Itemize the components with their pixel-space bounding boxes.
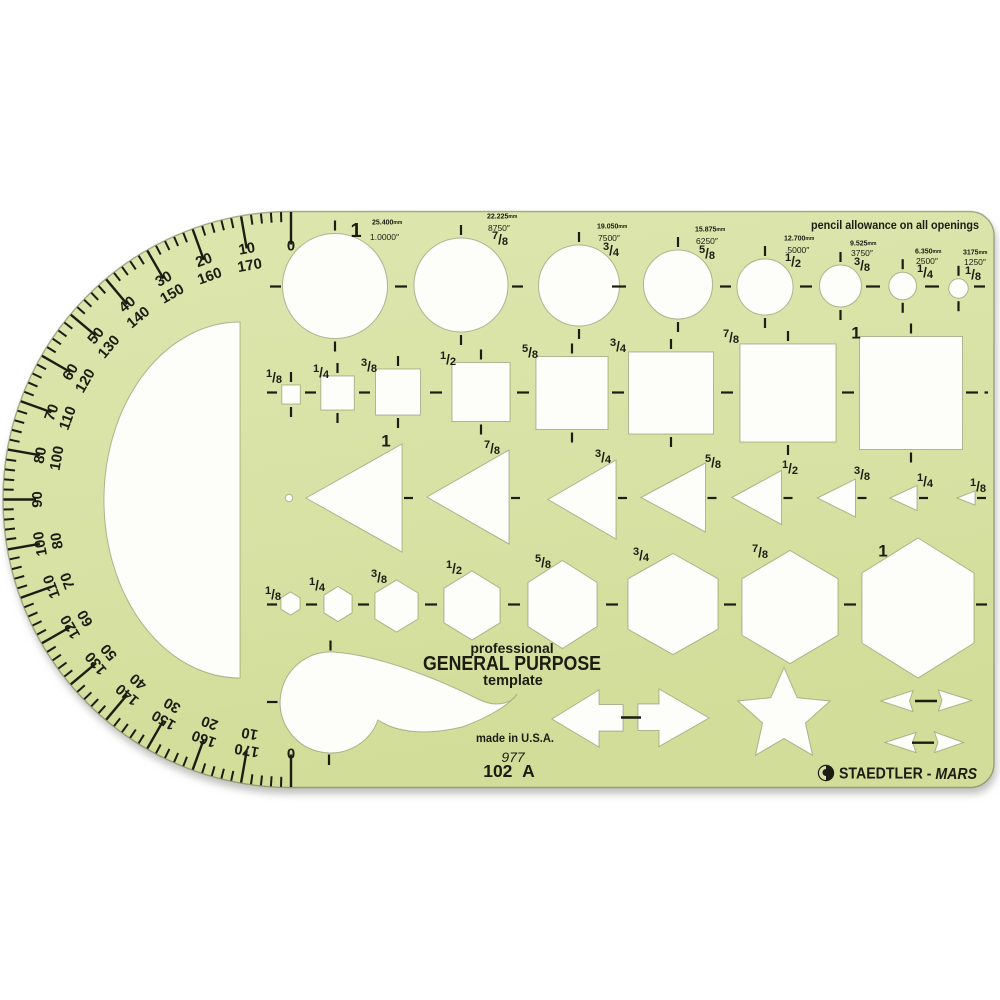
svg-text:3175mm: 3175mm [963, 250, 988, 257]
svg-text:1: 1 [350, 220, 361, 242]
svg-text:9.525mm: 9.525mm [850, 241, 877, 248]
svg-text:12.700mm: 12.700mm [784, 236, 815, 243]
svg-text:0: 0 [287, 239, 295, 255]
svg-text:STAEDTLER - MARS: STAEDTLER - MARS [839, 766, 977, 783]
svg-text:80: 80 [32, 446, 51, 465]
svg-text:1: 1 [851, 324, 860, 343]
svg-text:90: 90 [30, 491, 46, 507]
svg-text:22.225mm: 22.225mm [487, 214, 518, 221]
svg-text:10: 10 [240, 724, 259, 743]
svg-text:made in U.S.A.: made in U.S.A. [476, 731, 554, 745]
svg-text:6.350mm: 6.350mm [915, 249, 942, 256]
svg-text:10: 10 [237, 240, 256, 259]
svg-text:GENERAL PURPOSE: GENERAL PURPOSE [423, 653, 601, 675]
svg-text:25.400mm: 25.400mm [372, 220, 403, 227]
svg-text:15.875mm: 15.875mm [695, 227, 726, 234]
svg-text:80: 80 [48, 531, 67, 550]
svg-text:pencil allowance on all openin: pencil allowance on all openings [811, 218, 979, 232]
svg-text:102 A: 102 A [483, 761, 535, 781]
svg-text:19.050mm: 19.050mm [597, 224, 628, 231]
svg-text:1: 1 [381, 432, 390, 451]
svg-text:1.0000″: 1.0000″ [370, 232, 399, 242]
svg-text:1: 1 [878, 542, 887, 561]
svg-text:0: 0 [287, 745, 295, 761]
svg-text:template: template [483, 673, 543, 689]
